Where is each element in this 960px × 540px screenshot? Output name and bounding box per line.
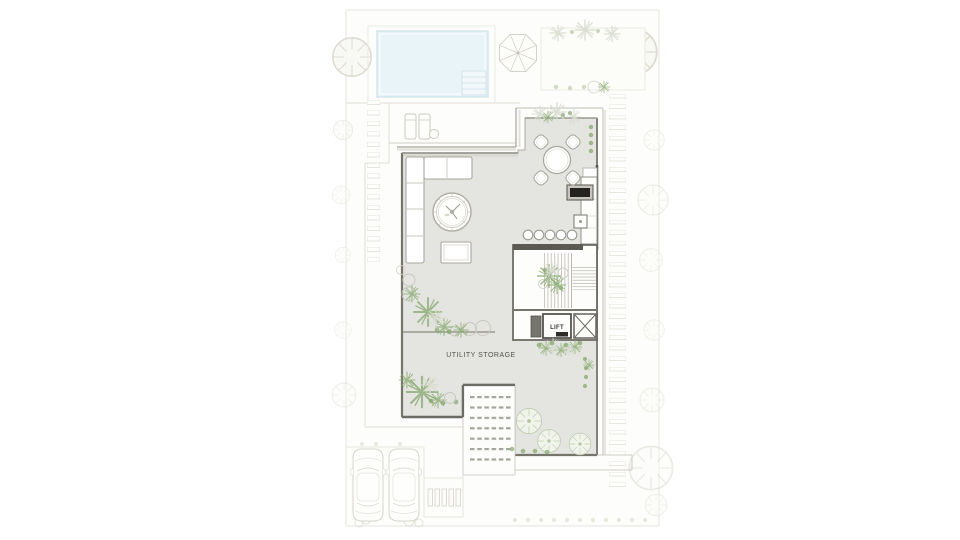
stepping-path-left bbox=[367, 100, 380, 262]
pool-steps bbox=[462, 71, 486, 95]
sink-icon bbox=[574, 215, 587, 228]
entry-ramp bbox=[463, 385, 515, 475]
bar-stools bbox=[523, 230, 577, 240]
car-icon bbox=[387, 449, 421, 521]
parasol-icon bbox=[500, 35, 537, 72]
cooktop-icon bbox=[567, 185, 593, 200]
stepping-path-right bbox=[609, 94, 626, 490]
dining-table bbox=[544, 147, 571, 174]
utility-storage-label: UTILITY STORAGE bbox=[446, 352, 515, 359]
ottoman bbox=[441, 242, 471, 263]
lift: LIFT bbox=[531, 314, 571, 338]
floor-plan-drawing: LIFT bbox=[0, 0, 960, 540]
swimming-pool bbox=[377, 31, 488, 97]
poolside-table bbox=[430, 130, 439, 139]
service-shaft bbox=[574, 314, 596, 338]
driveway-grille bbox=[428, 489, 461, 506]
round-rug-coffee-table bbox=[433, 193, 471, 231]
floor-plan-canvas: LIFT bbox=[0, 0, 960, 540]
stair-core: LIFT bbox=[513, 244, 597, 340]
ne-garden-terrace bbox=[541, 20, 645, 94]
lift-label: LIFT bbox=[550, 325, 564, 331]
car-icon bbox=[351, 449, 385, 521]
